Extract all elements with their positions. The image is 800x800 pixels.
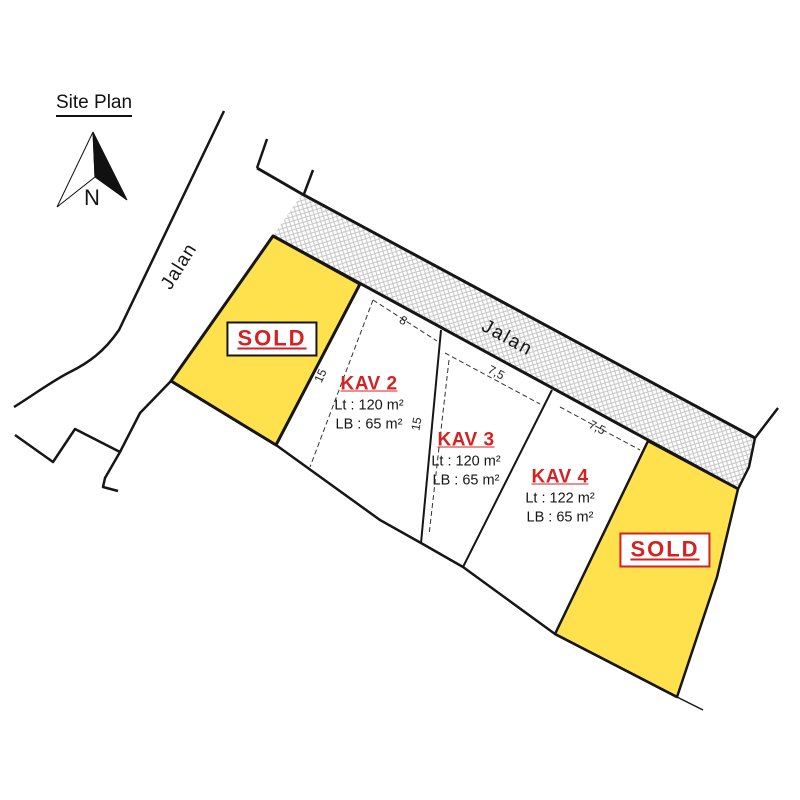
sold-badge-right: SOLD	[619, 533, 710, 568]
boundary-spur-bottom-left	[103, 381, 171, 491]
boundary-extension-bottom-right	[677, 697, 703, 710]
plot-kav4-name: KAV 4	[525, 467, 594, 489]
plot-kav4-land-area: Lt : 122 m²	[525, 490, 594, 509]
plot-kav3-building-area: LB : 65 m²	[431, 472, 500, 491]
site-plan-canvas: Site Plan N Jalan Jalan 8 15 7,5 15 7,5 …	[0, 0, 800, 800]
boundary-spur-top-right	[755, 408, 778, 438]
plot-kav4-building-area: LB : 65 m²	[525, 509, 594, 528]
boundary-staircase-left	[15, 429, 120, 462]
sold-badge-right-label: SOLD	[630, 537, 699, 562]
north-label: N	[84, 186, 100, 210]
plot-info-kav4: KAV 4 Lt : 122 m² LB : 65 m²	[525, 467, 594, 528]
plot-kav2-building-area: LB : 65 m²	[334, 416, 403, 435]
sold-badge-left-label: SOLD	[237, 326, 306, 351]
plot-info-kav3: KAV 3 Lt : 120 m² LB : 65 m²	[431, 430, 500, 491]
page-title: Site Plan	[56, 92, 132, 117]
plot-kav3-name: KAV 3	[431, 430, 500, 452]
plot-kav2-land-area: Lt : 120 m²	[334, 397, 403, 416]
dim-kav3-depth: 15	[409, 416, 424, 431]
plot-kav2-name: KAV 2	[334, 374, 403, 396]
plot-info-kav2: KAV 2 Lt : 120 m² LB : 65 m²	[334, 374, 403, 435]
sold-badge-left: SOLD	[226, 322, 317, 357]
plot-kav3-land-area: Lt : 120 m²	[431, 453, 500, 472]
